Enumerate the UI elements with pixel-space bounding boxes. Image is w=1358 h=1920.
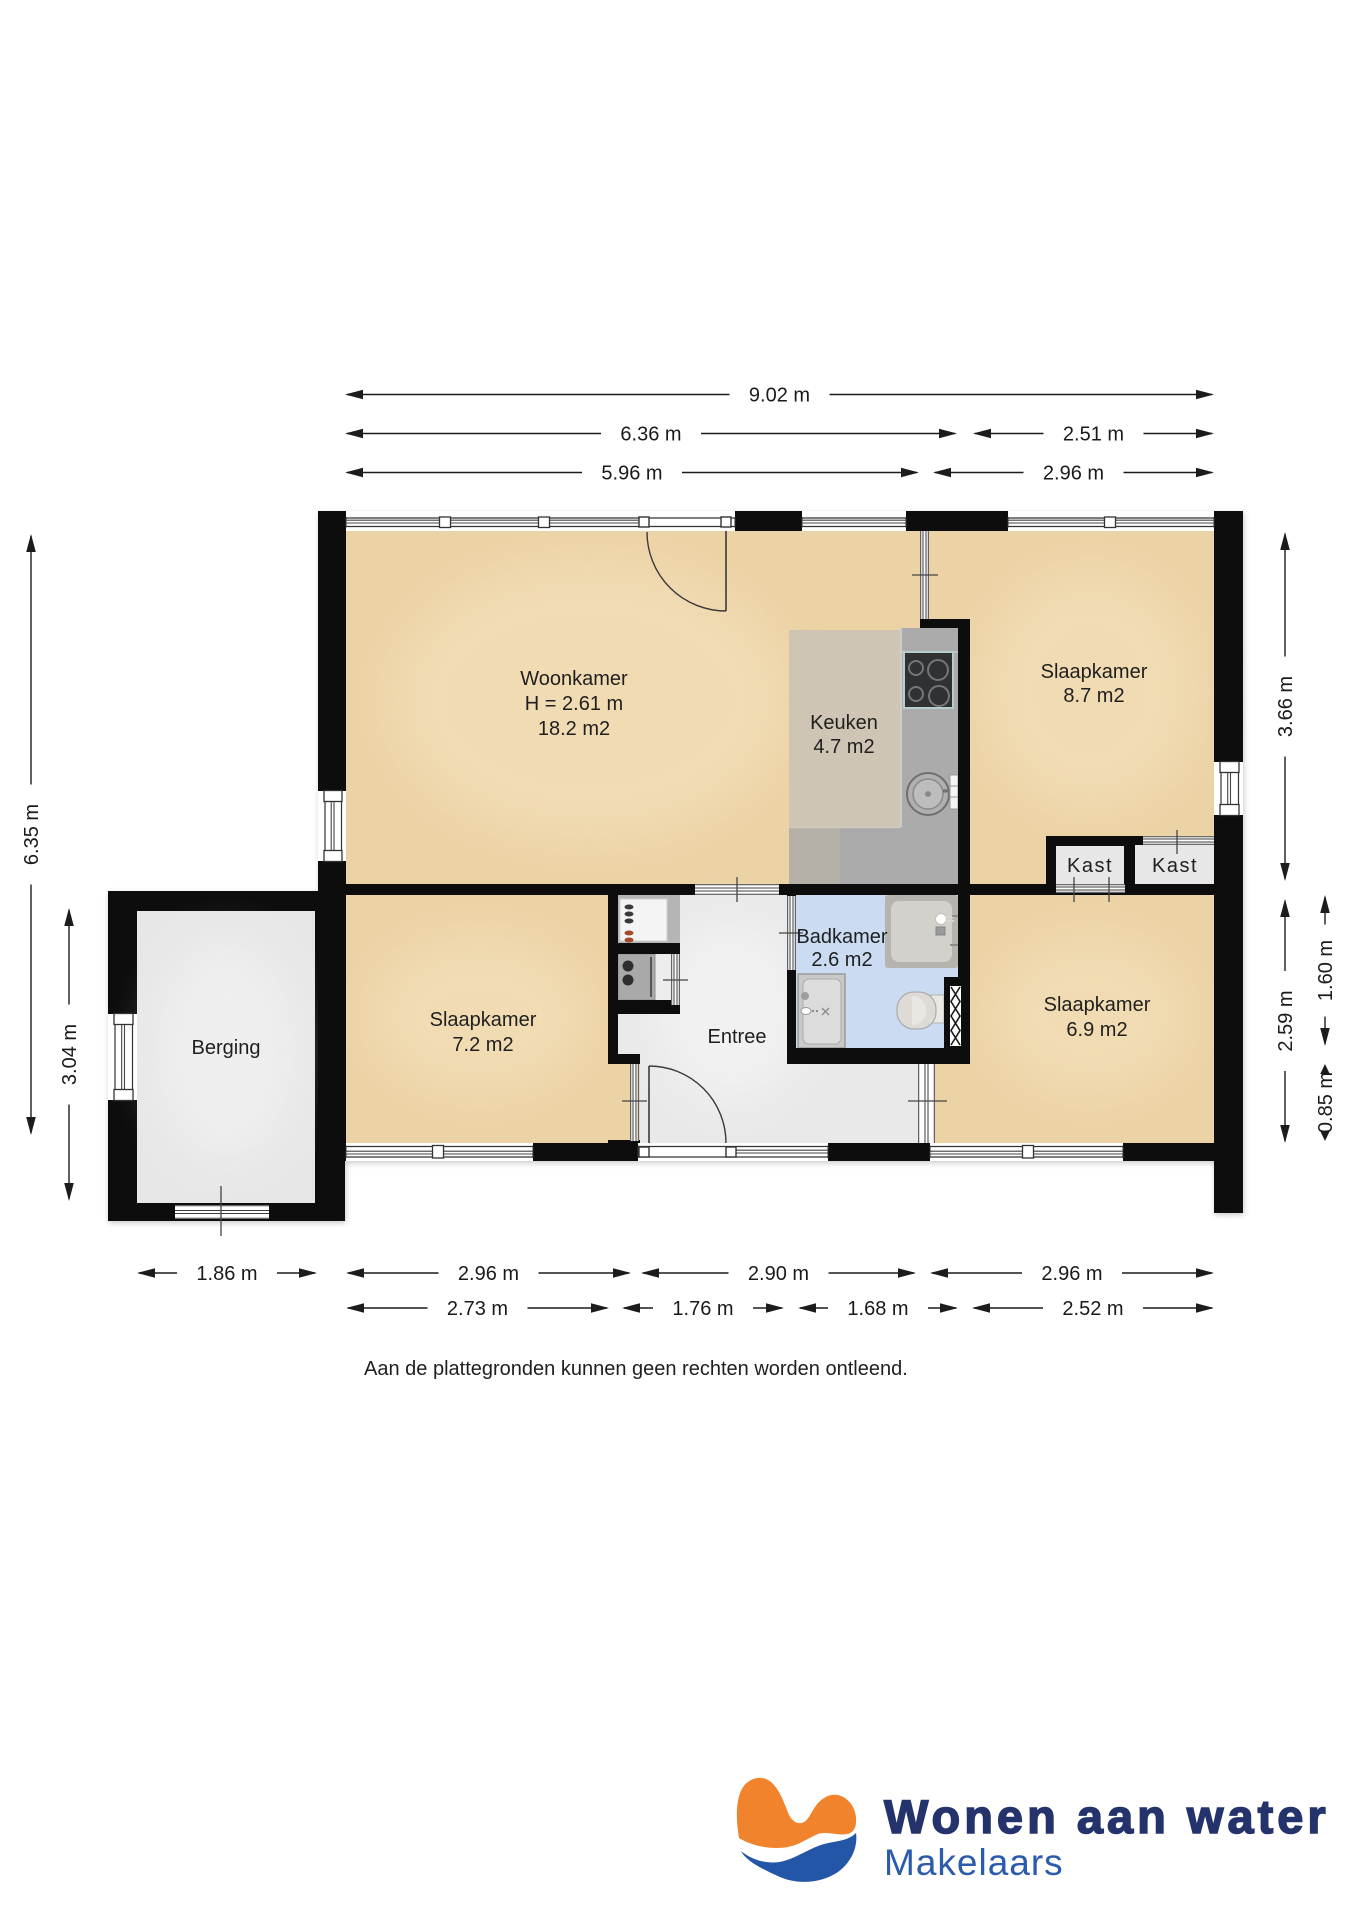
svg-text:2.52 m: 2.52 m [1062,1298,1123,1320]
svg-text:1.86 m: 1.86 m [196,1263,257,1285]
svg-text:Berging: Berging [192,1037,261,1059]
svg-text:2.73 m: 2.73 m [447,1298,508,1320]
svg-text:Makelaars: Makelaars [884,1842,1064,1883]
svg-text:Aan de plattegronden kunnen ge: Aan de plattegronden kunnen geen rechten… [364,1358,908,1380]
svg-text:6.35 m: 6.35 m [21,804,43,865]
svg-text:Slaapkamer: Slaapkamer [430,1009,537,1031]
svg-text:1.60 m: 1.60 m [1315,940,1337,1001]
svg-text:4.7 m2: 4.7 m2 [813,736,874,758]
svg-text:3.04 m: 3.04 m [59,1024,81,1085]
svg-text:2.59 m: 2.59 m [1275,990,1297,1051]
svg-text:H = 2.61 m: H = 2.61 m [525,693,623,715]
svg-text:Kast: Kast [1152,855,1198,877]
svg-text:6.36 m: 6.36 m [620,424,681,446]
svg-text:9.02 m: 9.02 m [749,385,810,407]
svg-text:1.68 m: 1.68 m [847,1298,908,1320]
svg-text:Keuken: Keuken [810,712,878,734]
svg-text:0.85 m: 0.85 m [1315,1072,1337,1133]
svg-text:Entree: Entree [708,1026,767,1048]
svg-text:Badkamer: Badkamer [796,926,887,948]
svg-text:2.90 m: 2.90 m [748,1263,809,1285]
svg-text:3.66 m: 3.66 m [1275,676,1297,737]
svg-text:18.2 m2: 18.2 m2 [538,718,610,740]
svg-text:5.96 m: 5.96 m [601,463,662,485]
svg-text:Slaapkamer: Slaapkamer [1044,994,1151,1016]
svg-text:7.2 m2: 7.2 m2 [452,1034,513,1056]
svg-text:2.96 m: 2.96 m [1043,463,1104,485]
svg-text:Kast: Kast [1067,855,1113,877]
svg-text:2.96 m: 2.96 m [458,1263,519,1285]
svg-text:2.96 m: 2.96 m [1041,1263,1102,1285]
svg-text:2.51 m: 2.51 m [1063,424,1124,446]
svg-text:1.76 m: 1.76 m [672,1298,733,1320]
svg-text:Slaapkamer: Slaapkamer [1041,661,1148,683]
svg-text:2.6 m2: 2.6 m2 [811,949,872,971]
svg-text:Woonkamer: Woonkamer [520,668,628,690]
svg-text:8.7 m2: 8.7 m2 [1063,685,1124,707]
svg-text:Wonen aan water: Wonen aan water [884,1790,1330,1843]
svg-text:6.9 m2: 6.9 m2 [1066,1019,1127,1041]
